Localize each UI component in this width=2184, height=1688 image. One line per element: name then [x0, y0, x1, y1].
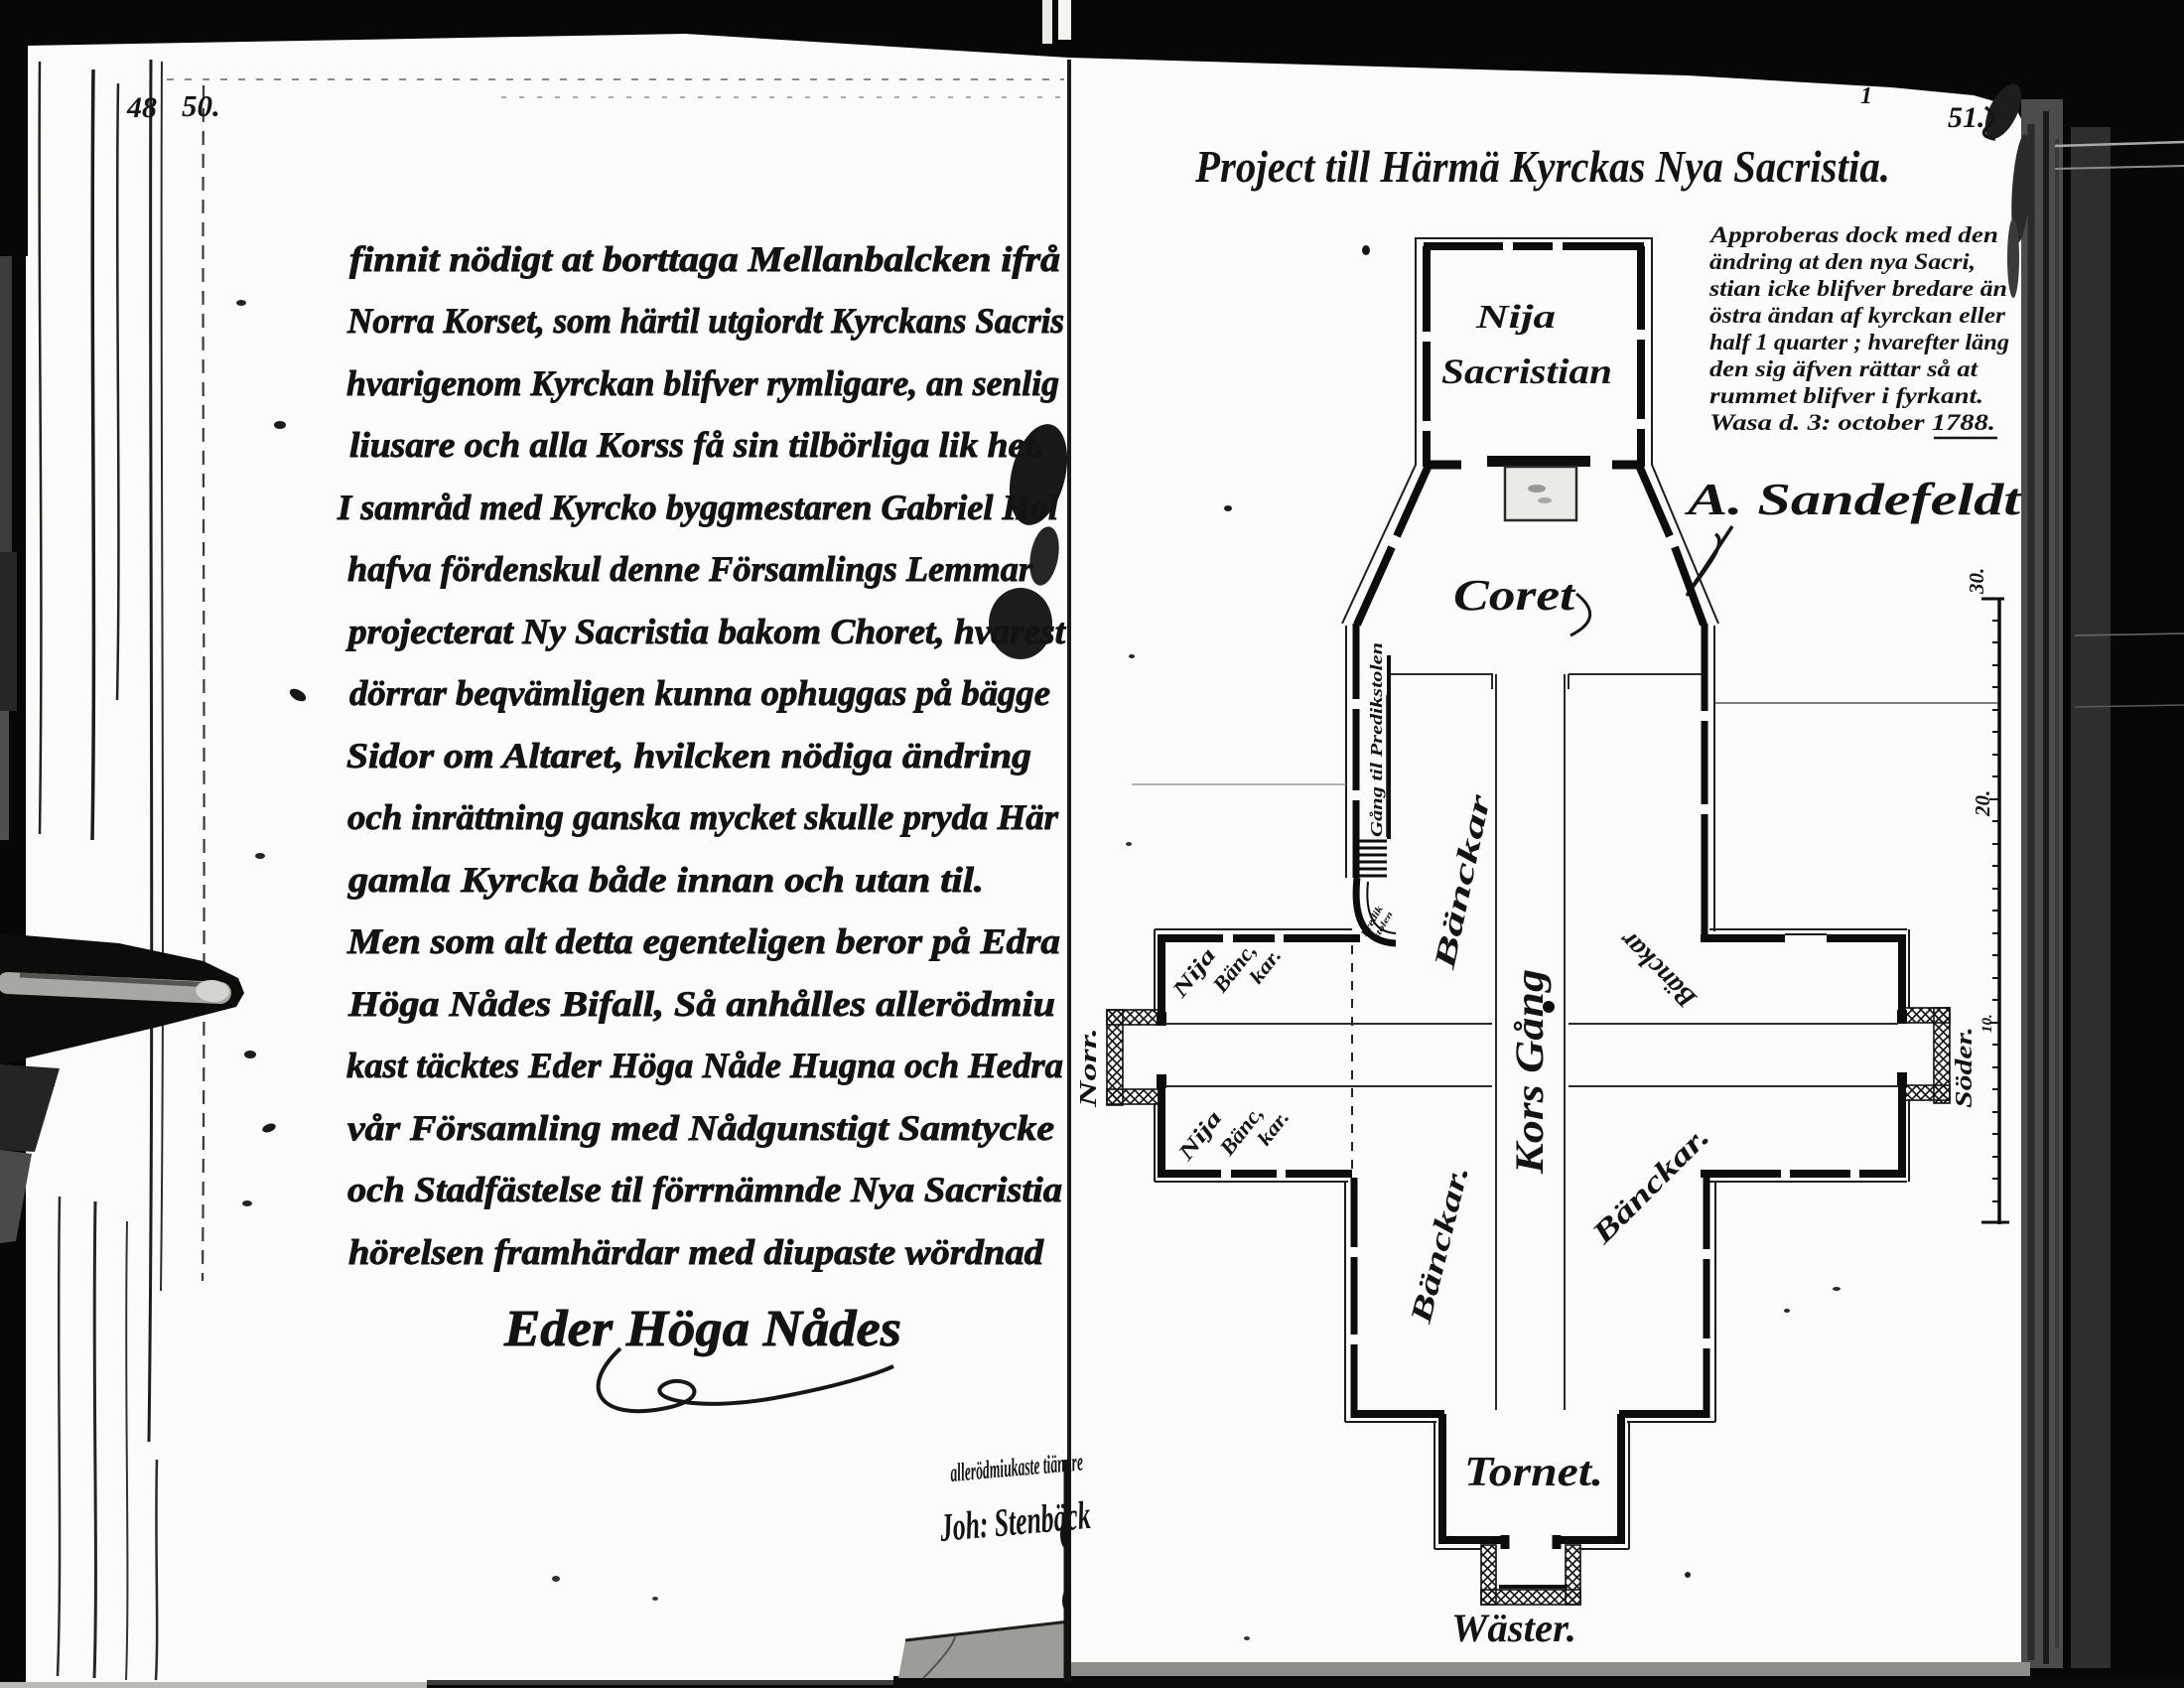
svg-text:liusare och alla Korss få sin: liusare och alla Korss få sin tilbörliga…: [349, 425, 1044, 465]
svg-text:hafva fördenskul denne Församl: hafva fördenskul denne Församlings Lemma…: [347, 549, 1033, 589]
svg-text:30.: 30.: [1965, 568, 1988, 595]
svg-text:Coret: Coret: [1453, 571, 1576, 620]
svg-text:Kors Gång: Kors Gång: [1507, 969, 1552, 1175]
svg-text:rummet blifver i fyrkant.: rummet blifver i fyrkant.: [1709, 383, 1983, 408]
svg-text:Wäster.: Wäster.: [1451, 1606, 1576, 1650]
svg-text:I samråd med Kyrcko byggmestar: I samråd med Kyrcko byggmestaren Gabriel…: [337, 488, 1058, 527]
svg-text:Gång til Predikstolen: Gång til Predikstolen: [1367, 642, 1386, 837]
svg-text:projecterat Ny Sacristia bakom: projecterat Ny Sacristia bakom Choret, h…: [345, 612, 1066, 651]
svg-text:hvarigenom Kyrckan blifver rym: hvarigenom Kyrckan blifver rymligare, an…: [346, 363, 1059, 403]
svg-text:östra ändan af kyrckan eller: östra ändan af kyrckan eller: [1709, 303, 2006, 328]
svg-text:Wasa d. 3: october 1788.: Wasa d. 3: october 1788.: [1709, 410, 1995, 435]
svg-text:och Stadfästelse til förrnämnd: och Stadfästelse til förrnämnde Nya Sacr…: [347, 1170, 1062, 1209]
svg-text:finnit nödigt at borttaga Mell: finnit nödigt at borttaga Mellanbalcken …: [349, 239, 1060, 279]
svg-text:51.: 51.: [1948, 101, 1985, 134]
svg-text:stian icke blifver bredare än: stian icke blifver bredare än: [1708, 276, 2007, 301]
svg-text:48: 48: [126, 91, 157, 124]
svg-text:vår Församling med Nådgunstigt: vår Församling med Nådgunstigt Samtycke: [347, 1108, 1054, 1148]
svg-text:Approberas dock med den: Approberas dock med den: [1708, 222, 1998, 247]
svg-text:half 1 quarter ; hvarefter län: half 1 quarter ; hvarefter läng: [1709, 330, 2009, 354]
svg-text:och inrättning ganska mycket s: och inrättning ganska mycket skulle pryd…: [347, 797, 1059, 837]
svg-text:50.: 50.: [182, 88, 220, 123]
svg-text:1: 1: [1860, 83, 1872, 109]
svg-text:Söder.: Söder.: [1952, 1027, 1978, 1108]
svg-text:den sig äfven rättar så at: den sig äfven rättar så at: [1709, 356, 1979, 381]
svg-text:hörelsen framhärdar med diupas: hörelsen framhärdar med diupaste wördnad: [348, 1232, 1044, 1272]
svg-text:Eder Höga Nådes: Eder Höga Nådes: [503, 1301, 901, 1357]
svg-text:Nija: Nija: [1475, 299, 1556, 336]
svg-text:A. Sandefeldt: A. Sandefeldt: [1684, 474, 2022, 524]
svg-text:Norr.: Norr.: [1076, 1028, 1102, 1109]
svg-text:dörrar beqvämligen kunna ophug: dörrar beqvämligen kunna ophuggas på bäg…: [349, 673, 1050, 713]
svg-text:Project till Härmä Kyrckas Nya: Project till Härmä Kyrckas Nya Sacristia…: [1194, 141, 1890, 192]
svg-text:Sidor om Altaret, hvilcken nöd: Sidor om Altaret, hvilcken nödiga ändrin…: [346, 736, 1031, 775]
svg-text:20.: 20.: [1971, 790, 1994, 817]
svg-text:10.: 10.: [1979, 1014, 1995, 1033]
svg-text:Norra Korset, som härtil utgio: Norra Korset, som härtil utgiordt Kyrcka…: [346, 301, 1064, 341]
svg-text:Tornet.: Tornet.: [1464, 1450, 1603, 1495]
svg-text:Höga Nådes Bifall, Så anhålles: Höga Nådes Bifall, Så anhålles allerödmi…: [347, 984, 1055, 1024]
svg-text:Sacristian: Sacristian: [1441, 352, 1612, 391]
svg-text:Men som alt detta egenteligen: Men som alt detta egenteligen beror på E…: [346, 921, 1060, 961]
svg-text:kast täcktes Eder Höga Nåde Hu: kast täcktes Eder Höga Nåde Hugna och He…: [346, 1046, 1063, 1085]
svg-text:gamla Kyrcka både innan och ut: gamla Kyrcka både innan och utan til.: [347, 860, 984, 900]
svg-text:ändring at den nya Sacri,: ändring at den nya Sacri,: [1709, 249, 1976, 274]
